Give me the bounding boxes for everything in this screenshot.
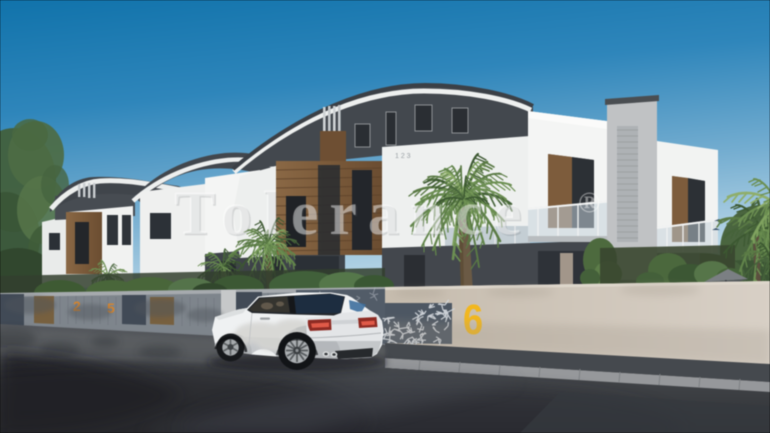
svg-text:1 2 3: 1 2 3 <box>395 153 411 160</box>
svg-text:®: ® <box>578 186 600 219</box>
svg-text:Tolerance: Tolerance <box>174 180 532 248</box>
